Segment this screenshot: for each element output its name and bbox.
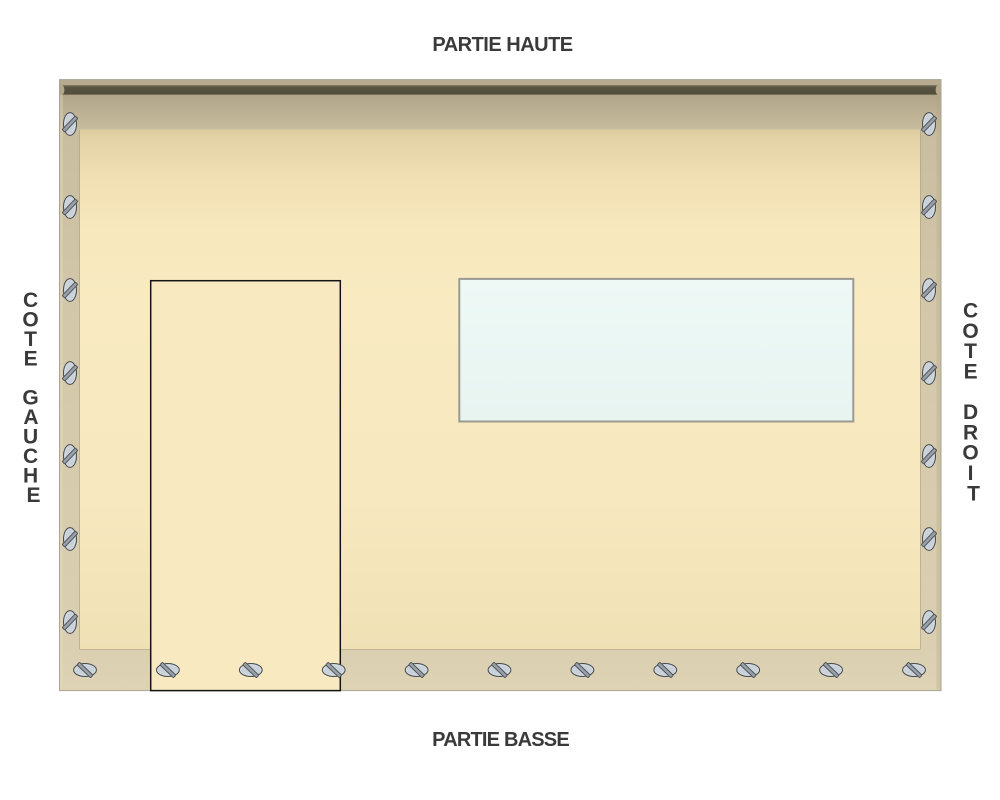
svg-text:C O T E G: C O T E G A U C H E bbox=[22, 289, 44, 507]
svg-text:C O T E D: C O T E D R O I T bbox=[962, 299, 984, 505]
svg-text:PARTIE BASSE: PARTIE BASSE bbox=[432, 729, 569, 751]
svg-text:PARTIE HAUTE: PARTIE HAUTE bbox=[432, 34, 572, 56]
